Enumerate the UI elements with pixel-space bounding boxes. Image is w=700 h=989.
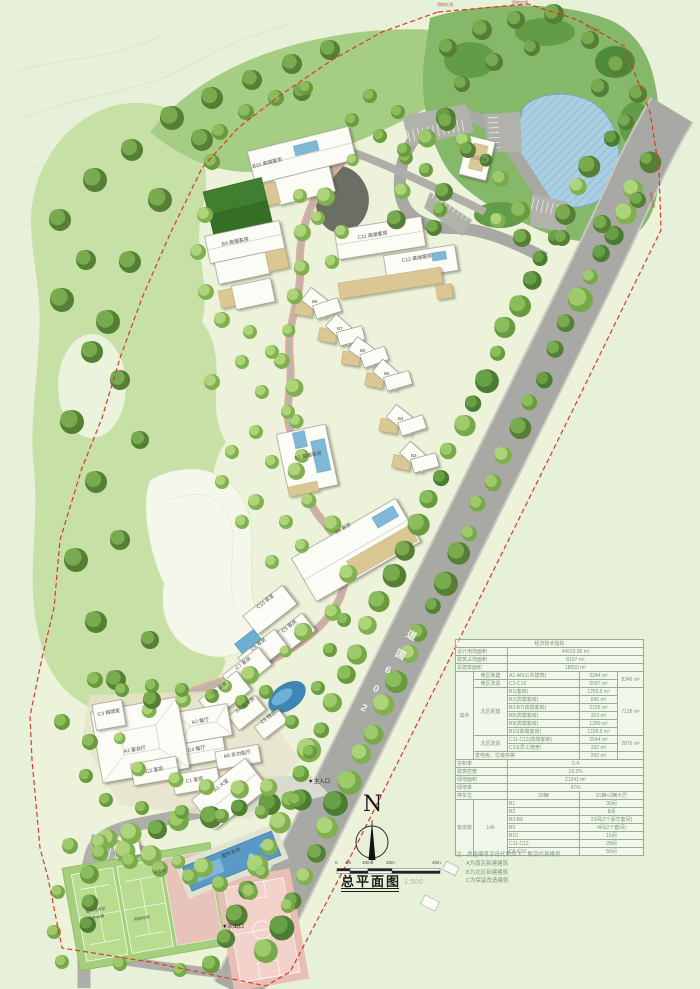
indicator-table-box: 经济技术指标 设计用地面积44919.95 m² 建筑占地面积8197 m² 总… <box>455 639 643 856</box>
cell-n2b: B2(高端客房) <box>508 696 580 704</box>
cell-s4: 北区改造 <box>474 736 508 752</box>
scale-tick-20m: 20m <box>386 860 395 865</box>
cell-n5v: 1280 m² <box>580 720 618 728</box>
note-line-2: B为北区新建建筑 <box>456 869 561 878</box>
north-letter: N <box>363 792 382 817</box>
label-b7: B7 <box>337 327 343 332</box>
cell-s1t: 8346 m² <box>618 672 644 688</box>
scale-tick-40m: 40m <box>432 860 441 865</box>
cell-s1v: 3244 m² <box>580 672 618 680</box>
cell-n4v: 313 m² <box>580 712 618 720</box>
site-plan-page: B10 高端客房 B9 高端客房 C11 高端客房 C12 高端客房 B8 B7… <box>0 0 700 989</box>
cell-k5: B10 <box>508 832 580 840</box>
cell-r1v: 44919.95 m² <box>508 648 644 656</box>
cell-k3v: 22间(2个豪华套间) <box>580 816 644 824</box>
cell-k3: B3-B8 <box>508 816 580 824</box>
cell-k2v: 8间 <box>580 808 644 816</box>
cell-r6v: 21241 m² <box>508 776 644 784</box>
legend-notes: 注：房屋编号字母代表如下，数字代表楼号 A为南区新建建筑 B为北区新建建筑 C为… <box>456 851 561 886</box>
cell-s5: 变电房、垃圾房等 <box>474 752 580 760</box>
boundary-label-1: 用地红线 <box>437 3 453 7</box>
cell-r5v: 18.2% <box>508 768 644 776</box>
drawing-scale: 1:500 <box>404 877 423 886</box>
scale-tick-10m: 10m <box>362 860 371 865</box>
cell-n4b: B8(高端客房) <box>508 712 580 720</box>
indicator-table: 经济技术指标 设计用地面积44919.95 m² 建筑占地面积8197 m² 总… <box>455 639 644 856</box>
boundary-label-2: 用地红线 <box>512 1 528 5</box>
cell-m2v: 332 m² <box>580 744 618 752</box>
cell-r8v: 93辆 <box>508 792 580 800</box>
cell-r3v: 18550 m² <box>508 664 644 672</box>
cell-n3b: B3-B7(高端客房) <box>508 704 580 712</box>
note-line-1: A为南区新建建筑 <box>456 860 561 869</box>
cell-k2: B2 <box>508 808 580 816</box>
label-b5: B5 <box>384 372 390 377</box>
cell-k4: B9 <box>508 824 580 832</box>
cell-n1b: B1(客房) <box>508 688 580 696</box>
cell-n5b: B9(高端客房) <box>508 720 580 728</box>
cell-s1: 南区新建 <box>474 672 508 680</box>
cell-s5v: 200 m² <box>580 752 618 760</box>
cell-k4v: 4间(2个套间) <box>580 824 644 832</box>
title-underline-1 <box>341 888 399 889</box>
label-b4: B4 <box>398 417 404 422</box>
cell-r2v: 8197 m² <box>508 656 644 664</box>
scale-tick-4m: 4m <box>345 860 351 865</box>
label-main-entrance: ▼主入口 <box>308 779 330 785</box>
cell-r7v: 47% <box>508 784 644 792</box>
cell-k7v: 56间 <box>580 848 644 856</box>
cell-n6v: 1228.5 m² <box>580 728 618 736</box>
cell-r1l: 设计用地面积 <box>456 648 508 656</box>
cell-r7l: 绿地率 <box>456 784 508 792</box>
cell-k6v: 28间 <box>580 840 644 848</box>
cell-s5t <box>618 752 644 760</box>
cell-m2b: C13(员工宿舍) <box>508 744 580 752</box>
cell-nt: 7128 m² <box>618 688 644 736</box>
note-line-0: 注：房屋编号字母代表如下，数字代表楼号 <box>456 851 561 860</box>
cell-k6: C11-C12 <box>508 840 580 848</box>
cell-mt: 2876 m² <box>618 736 644 752</box>
cell-r9v: 146 <box>474 800 508 856</box>
cell-s3: 北区新建 <box>474 688 508 736</box>
cell-k5v: 16间 <box>580 832 644 840</box>
cell-r2l: 建筑占地面积 <box>456 656 508 664</box>
cell-s2: 南区改造 <box>474 680 508 688</box>
cell-m1v: 2544 m² <box>580 736 618 744</box>
cell-n3v: 2155 m² <box>580 704 618 712</box>
title-underline-2 <box>341 891 399 892</box>
cell-r6l: 绿地面积 <box>456 776 508 784</box>
cell-n1v: 1255.5 m² <box>580 688 618 696</box>
cell-r8l: 停车位 <box>456 792 508 800</box>
label-b3: B3 <box>411 454 417 459</box>
label-b8: B8 <box>312 300 318 305</box>
label-side-exit: ▼次出口 <box>222 924 244 930</box>
note-line-3: C为保留改造建筑 <box>456 877 561 886</box>
cell-title: 经济技术指标 <box>456 640 644 648</box>
cell-r8x: 91辆+2辆大巴 <box>580 792 644 800</box>
cell-n2v: 896 m² <box>580 696 618 704</box>
cell-k1: B1 <box>508 800 580 808</box>
cell-r4v: 0.4 <box>508 760 644 768</box>
label-b6: B6 <box>360 349 366 354</box>
cell-s1b: A1-A6(公共建筑) <box>508 672 580 680</box>
cell-s2b: C1-C10 <box>508 680 580 688</box>
cell-r5l: 建筑密度 <box>456 768 508 776</box>
cell-qz: 其中 <box>456 672 474 760</box>
cell-n6b: B10(高端客房) <box>508 728 580 736</box>
cell-s2v: 5097 m² <box>580 680 618 688</box>
cell-r9l: 客房数 <box>456 800 474 856</box>
scale-tick-0: 0 <box>335 860 338 865</box>
cell-k1v: 30间 <box>580 800 644 808</box>
cell-m1b: C11-C12(高端客房) <box>508 736 580 744</box>
cell-r4l: 容积率 <box>456 760 508 768</box>
cell-r3l: 总建筑面积 <box>456 664 508 672</box>
